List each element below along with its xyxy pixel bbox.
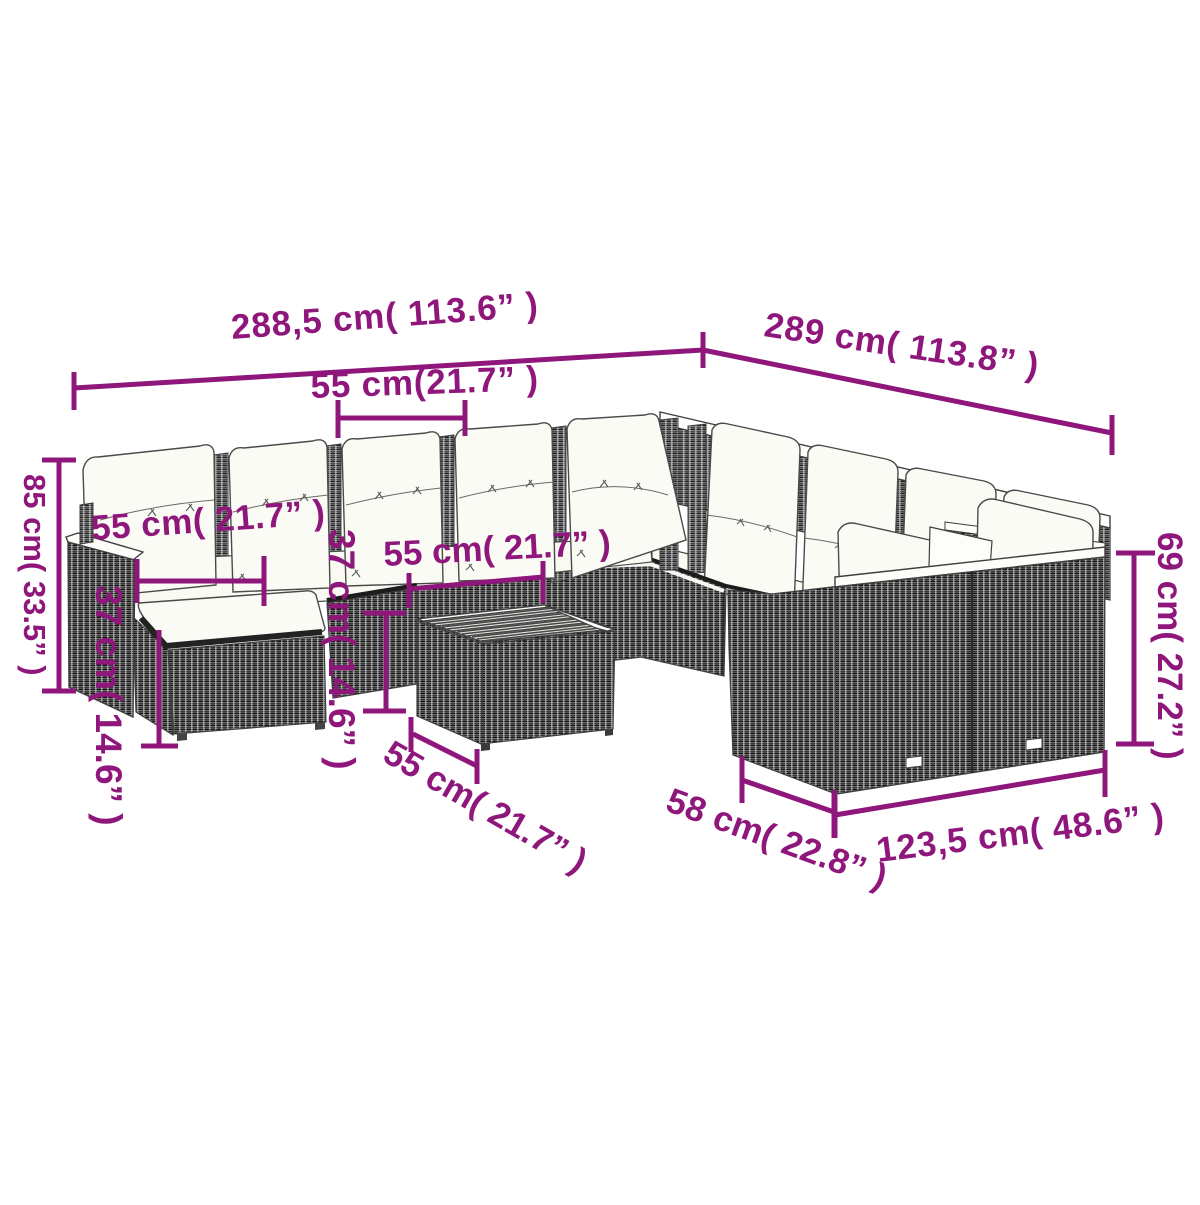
svg-text:37 cm( 14.6” ): 37 cm( 14.6” ) — [321, 529, 362, 770]
svg-text:69 cm( 27.2” ): 69 cm( 27.2” ) — [1150, 532, 1189, 760]
svg-text:55 cm(21.7” ): 55 cm(21.7” ) — [310, 359, 540, 406]
svg-text:85 cm( 33.5” ): 85 cm( 33.5” ) — [17, 474, 52, 676]
svg-text:37 cm( 14.6” ): 37 cm( 14.6” ) — [88, 585, 129, 826]
